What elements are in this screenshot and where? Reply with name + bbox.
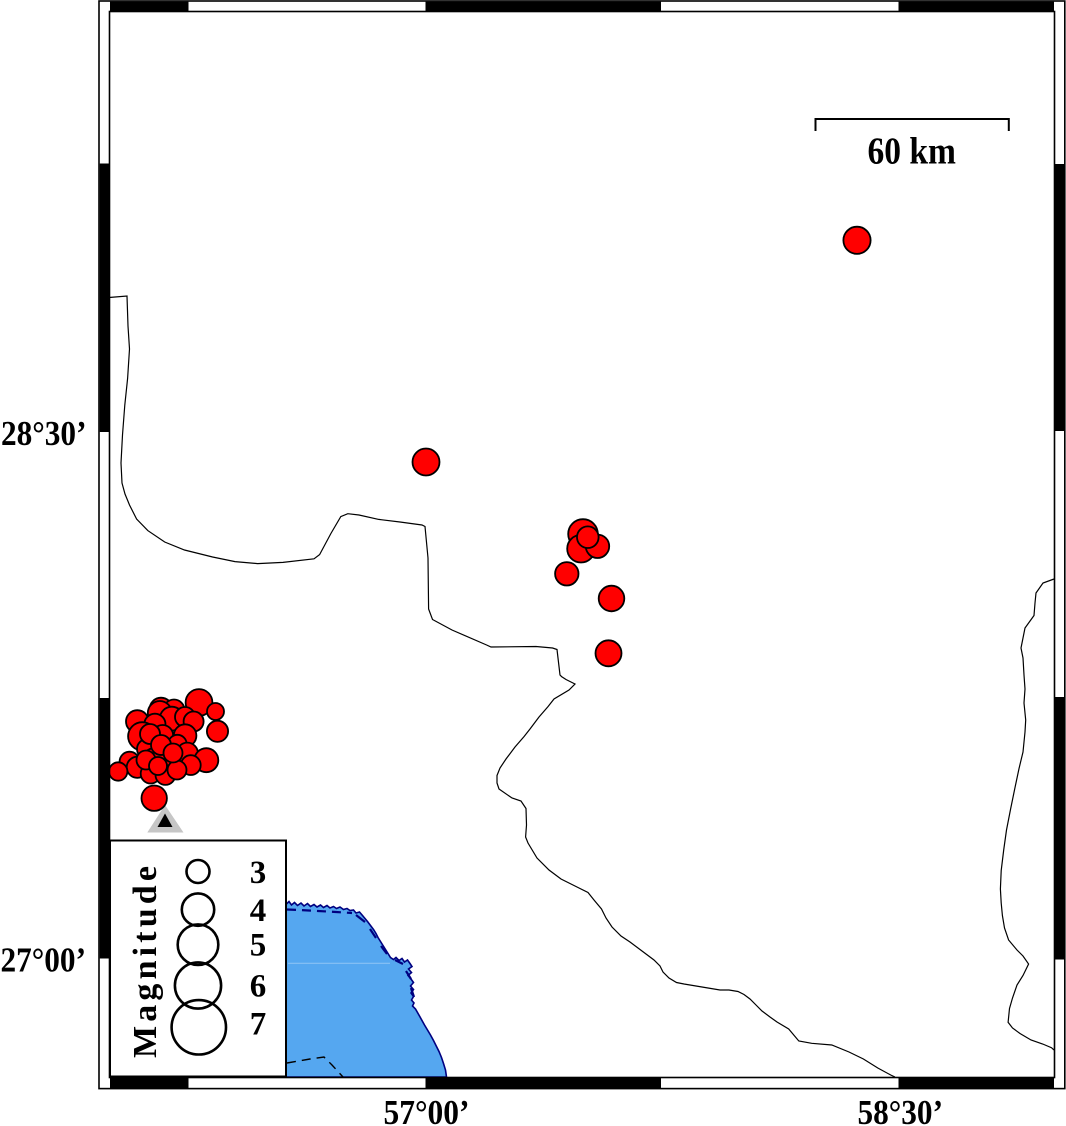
svg-text:6: 6 — [250, 969, 267, 1005]
svg-text:58°30’: 58°30’ — [858, 1094, 944, 1126]
svg-text:27°00’: 27°00’ — [1, 942, 87, 980]
svg-text:5: 5 — [250, 928, 267, 964]
svg-text:60 km: 60 km — [868, 131, 957, 173]
svg-text:4: 4 — [250, 893, 267, 929]
svg-text:57°00’: 57°00’ — [384, 1094, 470, 1126]
svg-text:Magnitude: Magnitude — [127, 862, 164, 1058]
svg-text:3: 3 — [250, 855, 267, 891]
svg-text:28°30’: 28°30’ — [1, 415, 87, 453]
svg-text:7: 7 — [250, 1007, 267, 1043]
